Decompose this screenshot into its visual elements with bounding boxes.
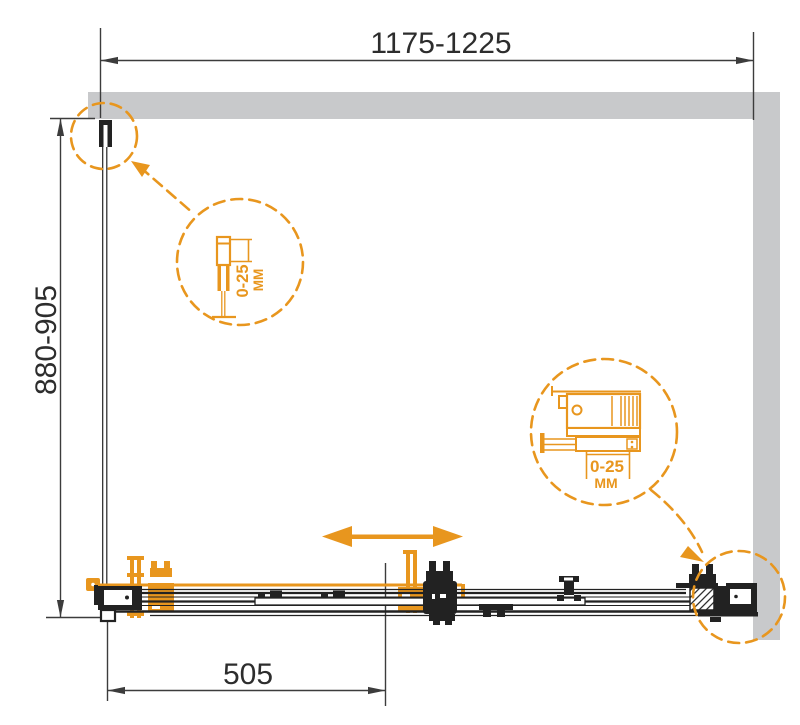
right-roller-and-wall-profile [676,564,758,622]
dim-arrow-left [101,57,119,64]
dim-left-label: 880-905 [30,285,63,395]
dimension-left: 880-905 [30,118,100,618]
detail-view-right: 0-25 ММ [540,386,641,491]
detail-right-unit-label: ММ [594,475,617,491]
fixed-glass-panel [99,120,112,588]
wall-right [753,92,780,640]
detail-view-left: 0-25 ММ [212,237,266,317]
leader-left [140,167,194,214]
orange-rail [86,584,462,587]
dim-arrow-top [57,119,64,137]
dim-top-label: 1175-1225 [370,27,511,60]
dim-arrow-left [108,687,126,694]
technical-drawing-canvas: 1175-1225 880-905 505 [0,0,800,725]
dim-bottom-label: 505 [223,658,273,691]
detail-left-unit-label: ММ [251,269,266,292]
detail-right-range-label: 0-25 [590,457,624,476]
shower-enclosure-plan-drawing: 1175-1225 880-905 505 [0,0,800,725]
dim-arrow-right [368,687,386,694]
slide-direction-arrow [322,526,463,547]
dim-arrow-bottom [57,600,64,618]
dim-arrow-right [736,57,754,64]
wall-top [88,92,780,119]
leader-right [651,490,702,552]
detail-left-range-label: 0-25 [234,264,252,297]
door-rail-assembly [86,550,758,625]
